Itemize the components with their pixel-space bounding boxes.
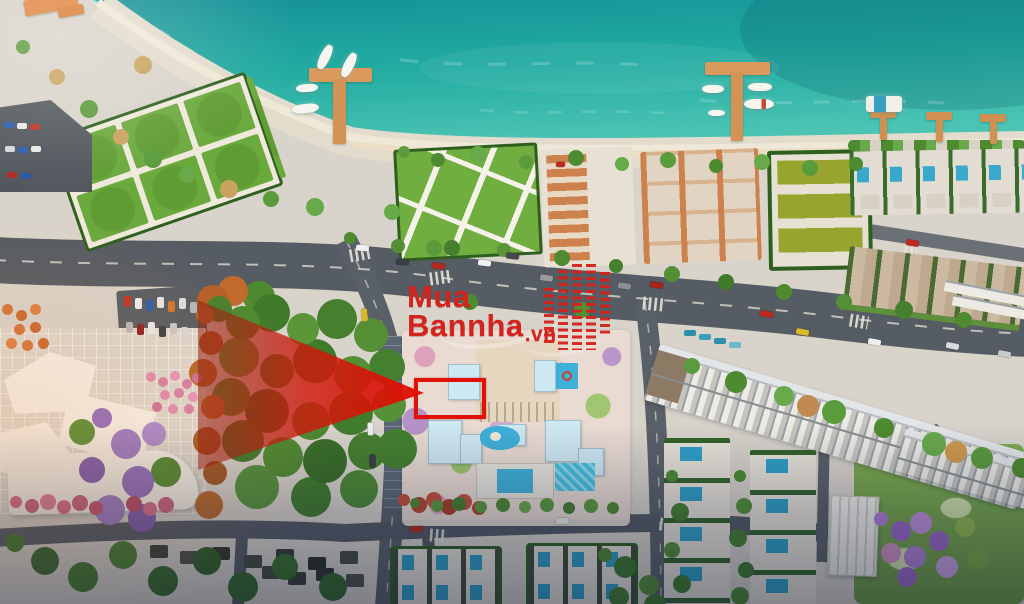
watermark-bar-column bbox=[572, 264, 582, 350]
highlight-box bbox=[414, 378, 486, 419]
watermark-bar-column bbox=[558, 270, 568, 350]
watermark-bar-column bbox=[544, 288, 554, 344]
aerial-masterplan-render: Mua Bannha.vn bbox=[0, 0, 1024, 604]
pointer-arrow bbox=[198, 300, 424, 470]
watermark-bar-column bbox=[586, 264, 596, 350]
watermark-bar-pattern bbox=[544, 262, 610, 350]
watermark-line2: Bannha.vn bbox=[407, 310, 556, 341]
watermark-bar-column bbox=[600, 272, 610, 336]
watermark-brand: Bannha bbox=[407, 308, 524, 343]
